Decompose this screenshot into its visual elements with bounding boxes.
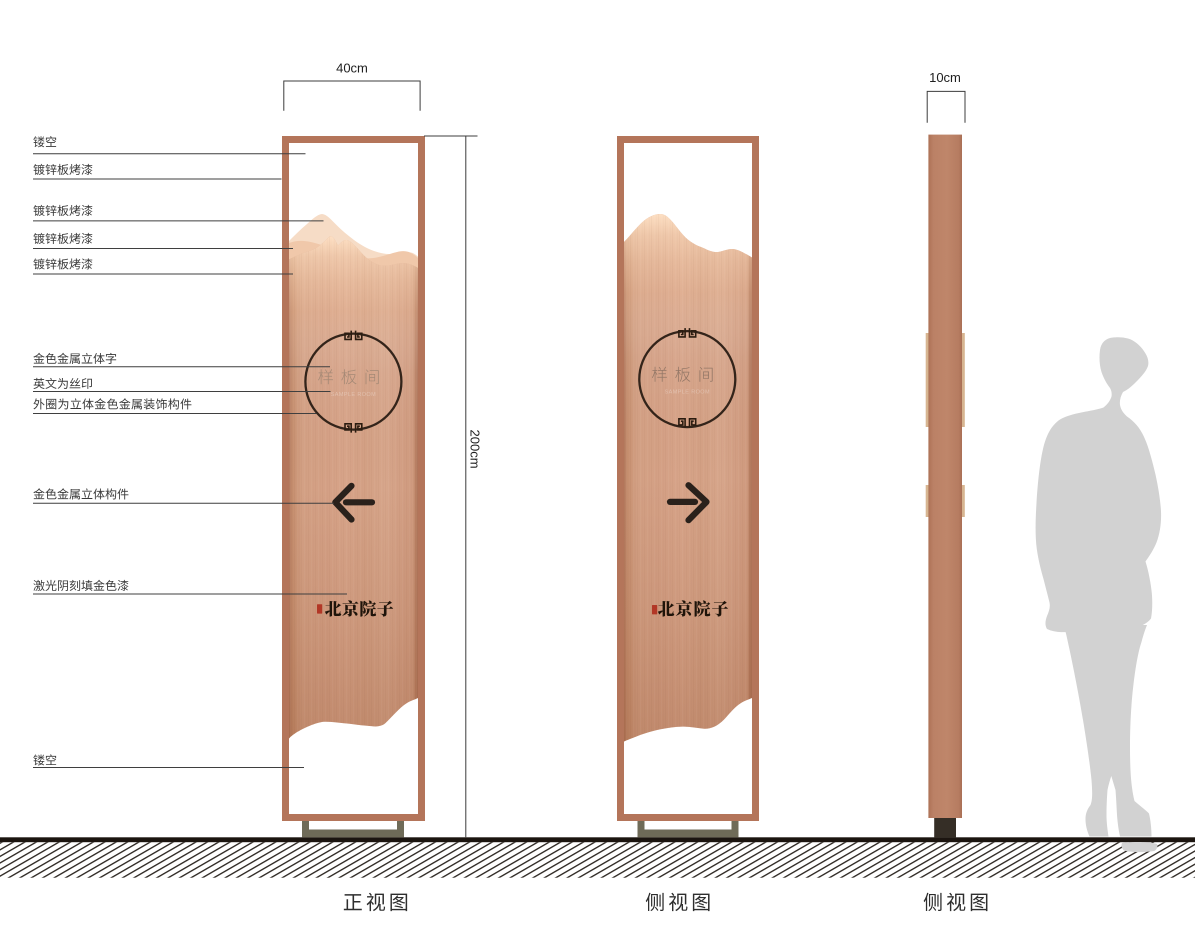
svg-text:SAMPLE ROOM: SAMPLE ROOM	[665, 390, 710, 396]
svg-text:200cm: 200cm	[468, 430, 483, 469]
svg-text:40cm: 40cm	[336, 61, 368, 76]
svg-text:10cm: 10cm	[929, 70, 961, 85]
svg-text:SAMPLE ROOM: SAMPLE ROOM	[331, 392, 376, 398]
